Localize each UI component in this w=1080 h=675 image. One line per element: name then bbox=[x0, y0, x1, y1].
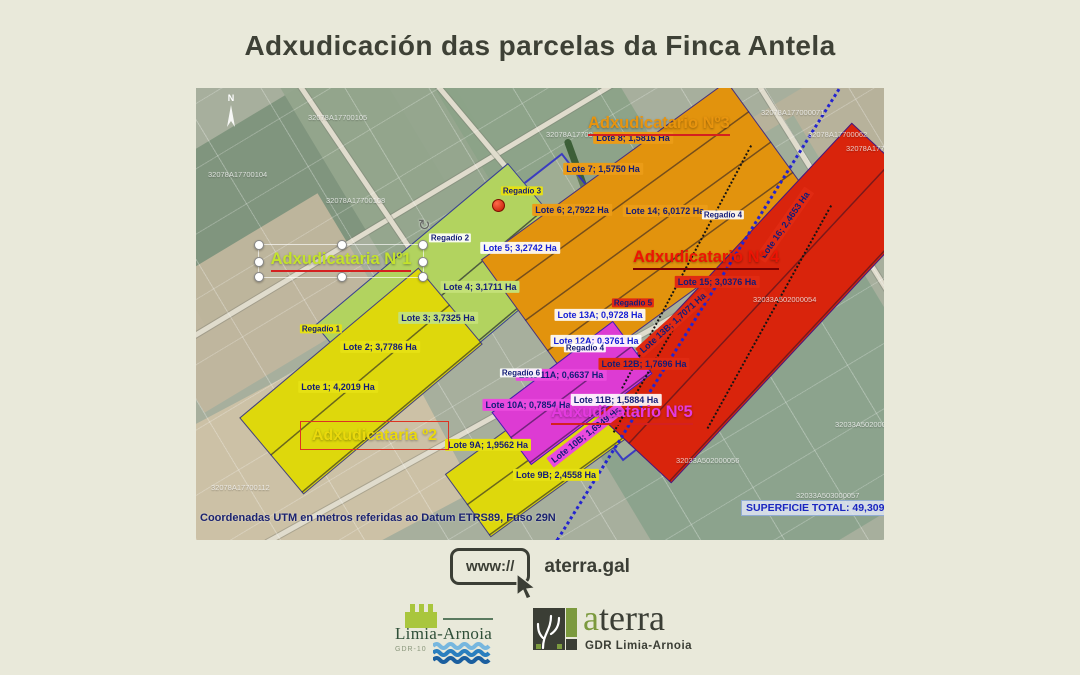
limia-logo-name: Limia-Arnoia bbox=[395, 624, 492, 644]
compass-needle-icon bbox=[224, 103, 238, 129]
adjudicator-4-label: Adxudicatario Nº 4 bbox=[633, 248, 779, 270]
north-label: N bbox=[224, 94, 238, 103]
page-title: Adxudicación das parcelas da Finca Antel… bbox=[0, 30, 1080, 62]
north-arrow: N bbox=[224, 94, 238, 134]
tree-icon bbox=[533, 608, 579, 654]
selection-handle[interactable] bbox=[337, 272, 347, 282]
irrigation-point-marker bbox=[492, 199, 505, 212]
limia-arnoia-logo: Limia-Arnoia GDR-10 bbox=[395, 602, 497, 666]
limia-logo-sub: GDR-10 bbox=[395, 646, 427, 653]
total-area-label: SUPERFICIE TOTAL: 49,3099 Hectáreas bbox=[741, 500, 884, 516]
aterra-logo-sub: GDR Limia-Arnoia bbox=[585, 640, 692, 652]
footer-logos: Limia-Arnoia GDR-10 aterra GDR Limia-Arn… bbox=[0, 602, 1080, 666]
adjudicator-1-selection-box[interactable]: Adxudicataria Nº1 bbox=[258, 244, 424, 278]
divider bbox=[443, 618, 493, 620]
selection-handle[interactable] bbox=[418, 240, 428, 250]
selection-handle[interactable] bbox=[254, 272, 264, 282]
selection-handle[interactable] bbox=[337, 240, 347, 250]
selection-handle[interactable] bbox=[418, 272, 428, 282]
parcel-map: 32078A1770010532078A1770010632078A177001… bbox=[196, 88, 884, 540]
selection-handle[interactable] bbox=[418, 257, 428, 267]
rotate-icon[interactable]: ↻ bbox=[418, 216, 431, 234]
site-url[interactable]: aterra.gal bbox=[544, 556, 630, 578]
aterra-logo-name: aterra bbox=[583, 600, 665, 636]
poster: Adxudicación das parcelas da Finca Antel… bbox=[0, 0, 1080, 675]
adjudicator-5-label: Adxudicatario Nº5 bbox=[551, 403, 693, 425]
irrigation-label: Regadío 6 bbox=[500, 368, 542, 377]
adjudicator-3-label: Adxudicatario Nº3 bbox=[588, 114, 730, 136]
url-prefix: www:// bbox=[466, 558, 514, 575]
selection-handle[interactable] bbox=[254, 240, 264, 250]
selection-handle[interactable] bbox=[254, 257, 264, 267]
website-callout[interactable]: www:// aterra.gal bbox=[0, 548, 1080, 585]
adjudicator-2-label-box: Adxudicataria º2 bbox=[300, 421, 449, 450]
cursor-icon bbox=[515, 573, 541, 599]
url-chip[interactable]: www:// bbox=[450, 548, 530, 585]
waves-icon bbox=[433, 642, 491, 666]
utm-coordinates-note: Coordenadas UTM en metros referidas ao D… bbox=[200, 512, 556, 524]
aterra-logo: aterra GDR Limia-Arnoia bbox=[533, 602, 685, 666]
adjudicator-1-label: Adxudicataria Nº1 bbox=[271, 250, 412, 272]
adjudicator-2-label: Adxudicataria º2 bbox=[312, 427, 437, 445]
